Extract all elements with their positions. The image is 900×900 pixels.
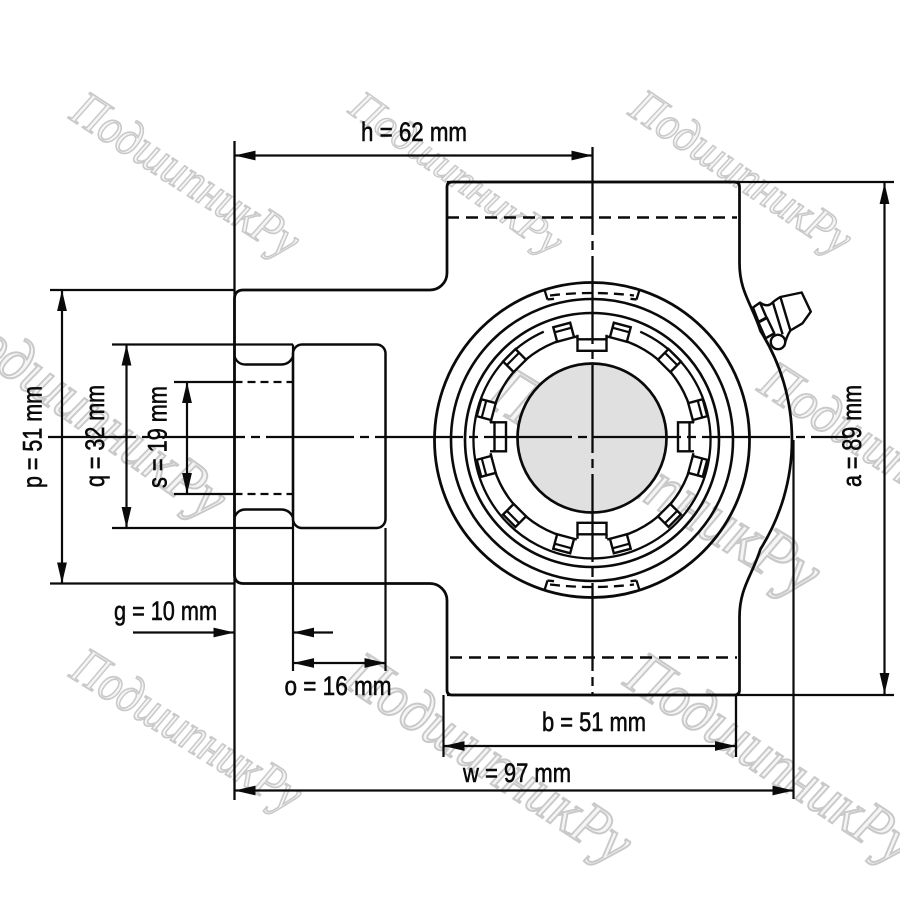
svg-text:p = 51 mm: p = 51 mm bbox=[18, 386, 48, 488]
svg-text:q = 32 mm: q = 32 mm bbox=[80, 385, 110, 487]
svg-text:g = 10 mm: g = 10 mm bbox=[114, 596, 217, 626]
svg-text:b = 51 mm: b = 51 mm bbox=[542, 707, 646, 737]
svg-text:h = 62 mm: h = 62 mm bbox=[361, 117, 467, 147]
svg-text:s = 19 mm: s = 19 mm bbox=[143, 386, 173, 488]
svg-text:a = 89 mm: a = 89 mm bbox=[837, 385, 867, 487]
svg-text:o = 16 mm: o = 16 mm bbox=[285, 671, 392, 701]
svg-text:w = 97 mm: w = 97 mm bbox=[462, 758, 571, 788]
